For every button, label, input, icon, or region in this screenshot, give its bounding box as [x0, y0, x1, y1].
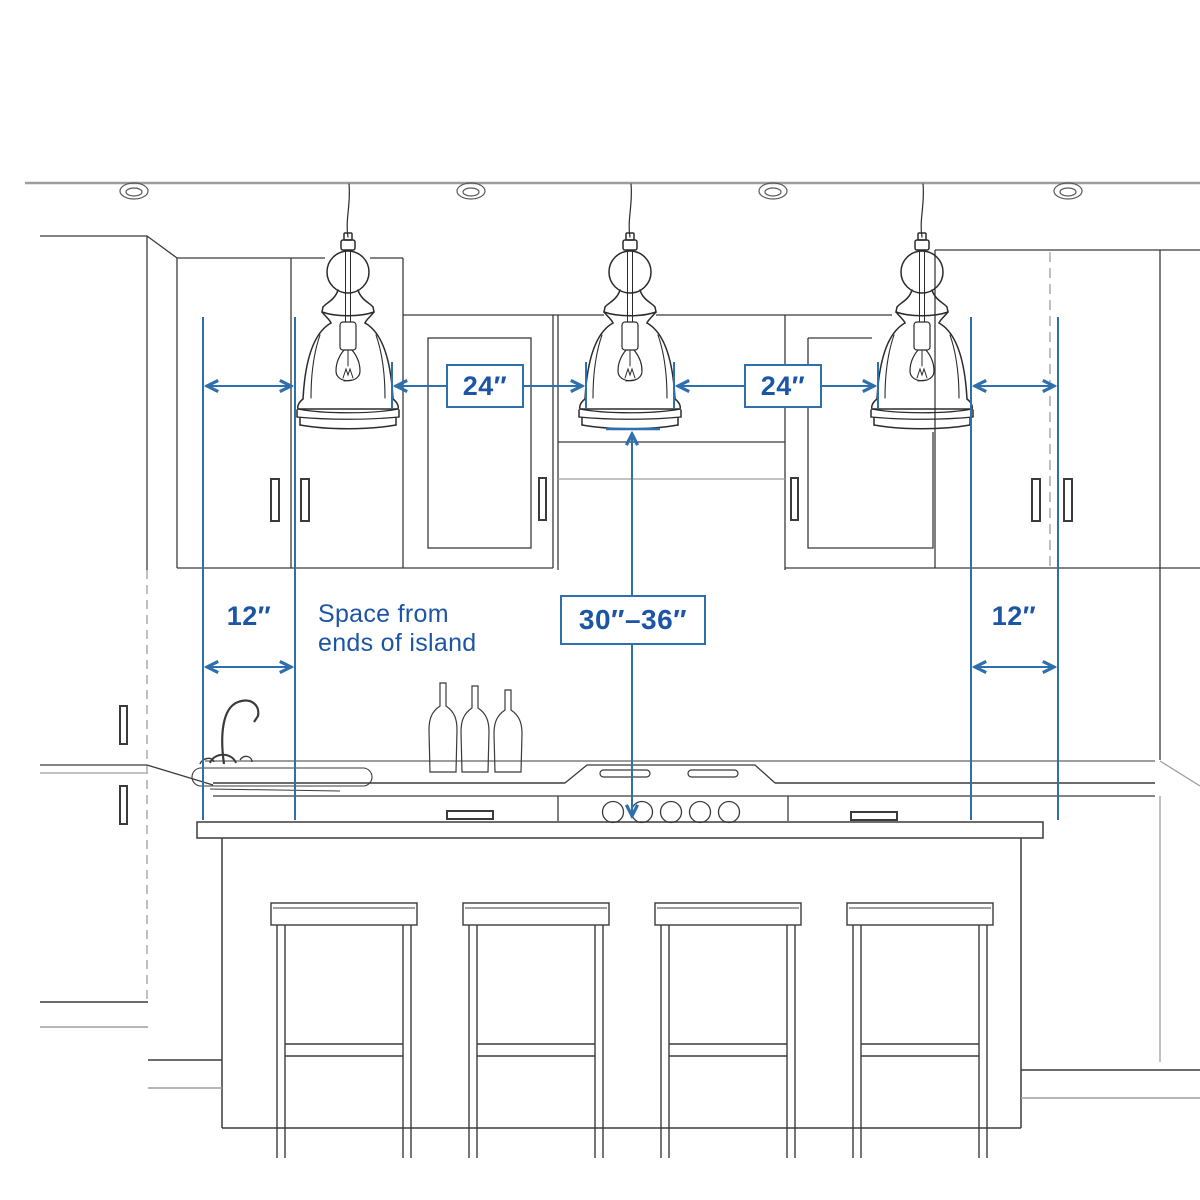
pendant-lights-sketch: [297, 184, 973, 429]
island-sketch: [40, 822, 1200, 1128]
island-end-space-note: Space from ends of island: [318, 600, 476, 658]
pendant-spacing-diagram: 24″ 24″ 30″–36″ 12″ 12″ Space from ends …: [0, 0, 1200, 1200]
dimension-label-12in-left: 12″: [199, 601, 299, 632]
dimension-label-30-36in: 30″–36″: [560, 595, 706, 645]
note-line-1: Space from: [318, 600, 476, 629]
dimension-label-12in-right: 12″: [964, 601, 1064, 632]
note-line-2: ends of island: [318, 629, 476, 658]
dimension-label-24in-right: 24″: [744, 364, 822, 408]
ceiling-sketch: [25, 183, 1200, 199]
dimension-label-24in-left: 24″: [446, 364, 524, 408]
bar-stools-sketch: [271, 903, 993, 1158]
